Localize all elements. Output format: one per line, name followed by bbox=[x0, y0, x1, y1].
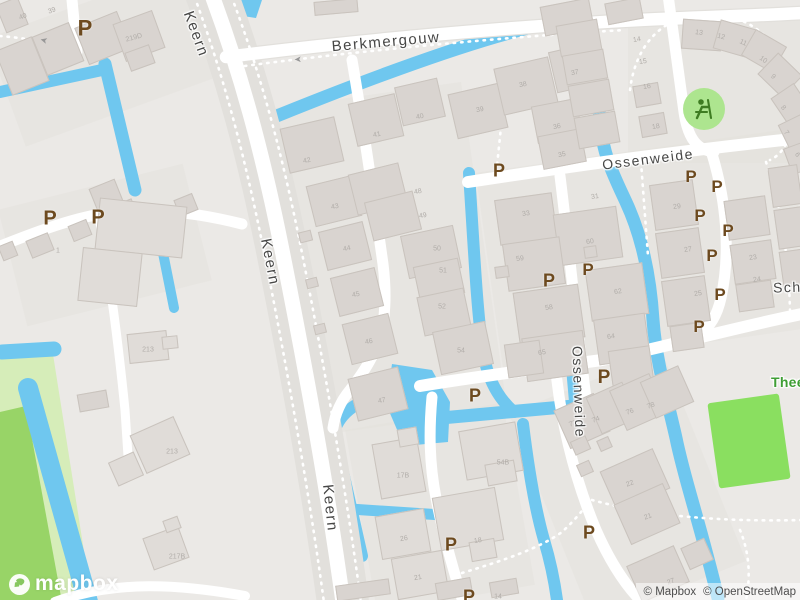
footpath bbox=[766, 162, 790, 310]
basemap-svg bbox=[0, 0, 800, 600]
road bbox=[0, 210, 242, 247]
road bbox=[72, 0, 77, 52]
playground-marker bbox=[683, 88, 725, 130]
mapbox-logo-text: mapbox bbox=[35, 572, 119, 596]
mapbox-logo-icon bbox=[8, 573, 31, 596]
attribution-osm-link[interactable]: © OpenStreetMap bbox=[703, 586, 796, 598]
canal bbox=[0, 70, 102, 92]
pond bbox=[386, 364, 450, 446]
canal bbox=[523, 424, 557, 600]
attribution-bar: © Mapbox © OpenStreetMap bbox=[636, 583, 800, 600]
canal bbox=[161, 243, 174, 308]
canal bbox=[2, 349, 54, 352]
playground-circle bbox=[683, 88, 725, 130]
footpath bbox=[462, 503, 588, 573]
footpath bbox=[497, 88, 505, 166]
road bbox=[701, 154, 726, 333]
footpath bbox=[0, 36, 62, 46]
mapbox-logo[interactable]: mapbox bbox=[8, 572, 119, 596]
road bbox=[100, 223, 128, 456]
road-ossenweide bbox=[468, 138, 800, 182]
canal bbox=[350, 509, 442, 515]
road bbox=[333, 60, 385, 428]
sports-field bbox=[707, 393, 790, 488]
map-canvas[interactable]: 4039219D1213213217B424344454647484950515… bbox=[0, 0, 800, 600]
canal bbox=[105, 64, 135, 190]
attribution-mapbox-link[interactable]: © Mapbox bbox=[644, 586, 697, 598]
